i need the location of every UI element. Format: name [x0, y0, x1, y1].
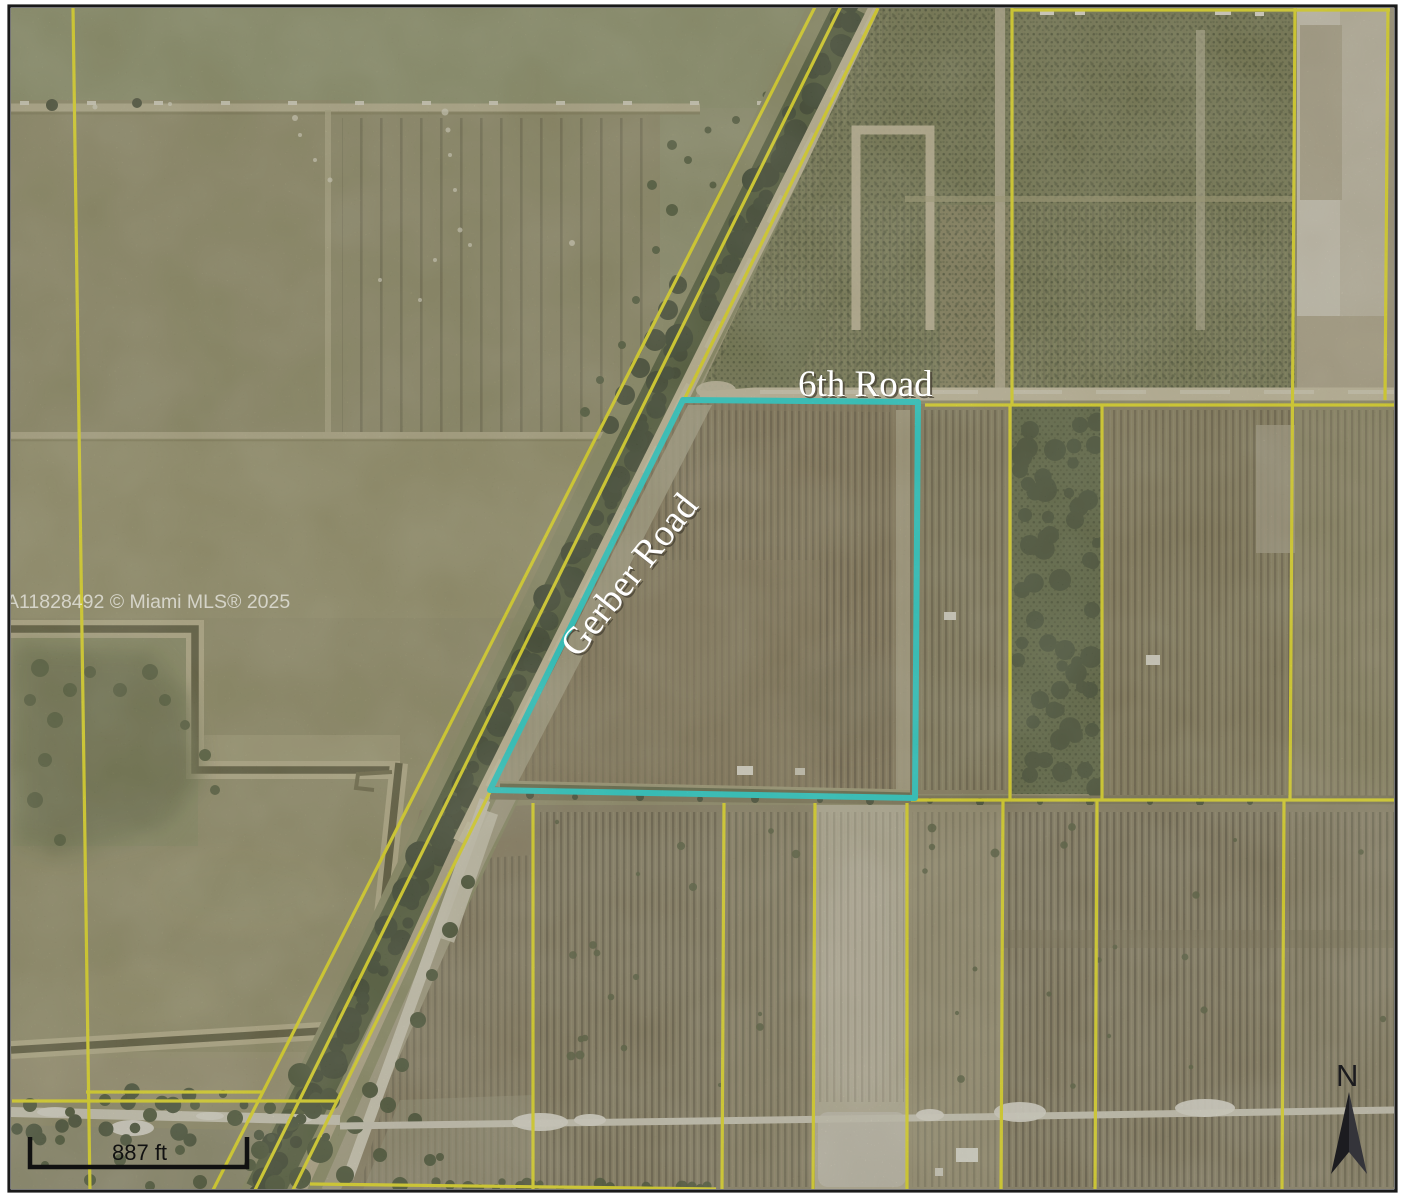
svg-text:N: N — [1336, 1058, 1358, 1093]
svg-text:6th Road: 6th Road — [798, 364, 933, 405]
svg-text:887 ft: 887 ft — [112, 1140, 167, 1165]
svg-text:A11828492 © Miami MLS® 2025: A11828492 © Miami MLS® 2025 — [6, 591, 290, 613]
